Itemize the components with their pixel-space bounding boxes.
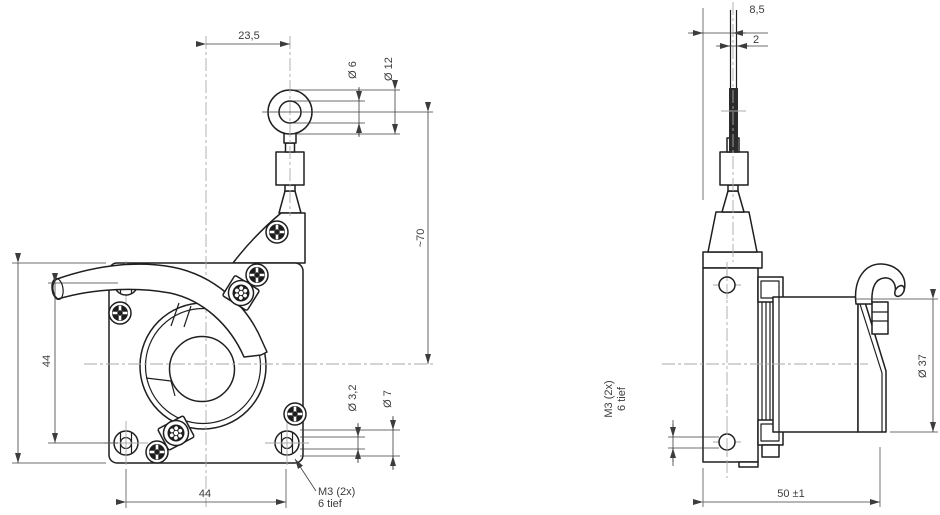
side-front-plate xyxy=(703,268,758,462)
dim-eyelet-outer: Ø 12 xyxy=(383,57,395,81)
draw-wire-rope xyxy=(729,88,738,152)
dim-eyelet-bore: Ø 6 xyxy=(347,61,359,79)
side-wire-fitting-stack xyxy=(703,10,762,268)
dim-housing-depth: 50 ±1 xyxy=(777,488,804,500)
dim-mount-hole-bore: Ø 3,2 xyxy=(347,385,359,412)
encoder-housing xyxy=(773,297,858,432)
technical-drawing-page: 23,5 Ø 6 Ø 12 ~70 □55 44 xyxy=(0,0,940,515)
measuring-drum xyxy=(170,337,235,402)
dim-drum-diameter: Ø 37 xyxy=(917,354,929,378)
dim-hole-pitch-vertical: 44 xyxy=(41,355,53,367)
cable-hook xyxy=(856,264,905,304)
front-view: 23,5 Ø 6 Ø 12 ~70 □55 44 xyxy=(0,30,433,515)
dim-free-wire-length: ~70 xyxy=(415,229,427,248)
dim-wire-exit-offset: 8,5 xyxy=(749,4,764,16)
side-view: 8,5 2 Ø 37 50 ±1 M3 (2x) 6 tief xyxy=(603,2,938,507)
side-clamp-block xyxy=(720,152,748,185)
technical-drawing-canvas: 23,5 Ø 6 Ø 12 ~70 □55 44 xyxy=(0,0,940,515)
thread-note-line1: M3 (2x) xyxy=(318,486,355,498)
bracket-trapezoid xyxy=(708,212,757,252)
cable-gland xyxy=(872,302,888,334)
side-thread-note-line1: M3 (2x) xyxy=(603,380,615,417)
bracket-base xyxy=(703,252,762,268)
dim-hole-pitch-horizontal: 44 xyxy=(199,488,211,500)
dim-mount-hole-counterbore: Ø 7 xyxy=(382,390,394,408)
side-thread-note-line2: 6 tief xyxy=(616,386,628,411)
dim-wire-diameter: 2 xyxy=(753,34,759,46)
thread-note-line2: 6 tief xyxy=(318,498,343,510)
dim-wire-offset: 23,5 xyxy=(238,30,259,42)
plate-foot xyxy=(739,462,758,467)
